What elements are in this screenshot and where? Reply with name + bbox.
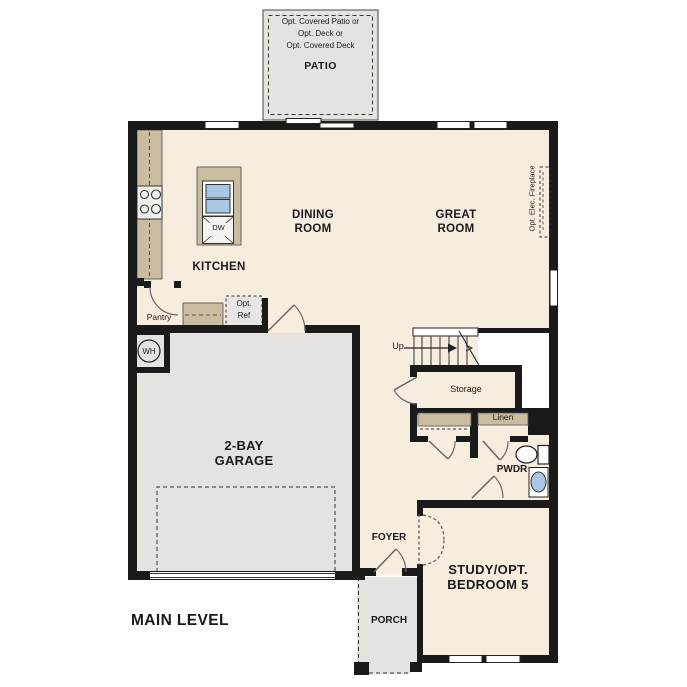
porch-area <box>354 577 422 675</box>
floor-plan-canvas: Opt. Covered Patio or Opt. Deck or Opt. … <box>0 0 687 687</box>
window <box>550 270 558 306</box>
window <box>474 122 507 129</box>
window <box>437 122 470 129</box>
dishwasher-icon <box>203 217 234 244</box>
linen-shelf <box>478 413 528 425</box>
porch-post <box>354 662 369 675</box>
window <box>486 656 520 663</box>
toilet-icon <box>516 446 549 465</box>
porch-post <box>410 662 422 672</box>
patio-slider-door <box>320 123 354 128</box>
cooktop-icon <box>137 186 162 219</box>
opt-ref-box <box>226 296 262 326</box>
garage-door <box>150 572 335 579</box>
window <box>205 122 239 129</box>
sink-vanity-icon <box>529 468 548 498</box>
floor-plan-drawing <box>0 0 687 687</box>
window <box>449 656 482 663</box>
storage-room <box>410 365 522 415</box>
patio-area <box>263 10 378 120</box>
sink-icon <box>203 181 234 216</box>
patio-slider-door <box>286 119 321 124</box>
